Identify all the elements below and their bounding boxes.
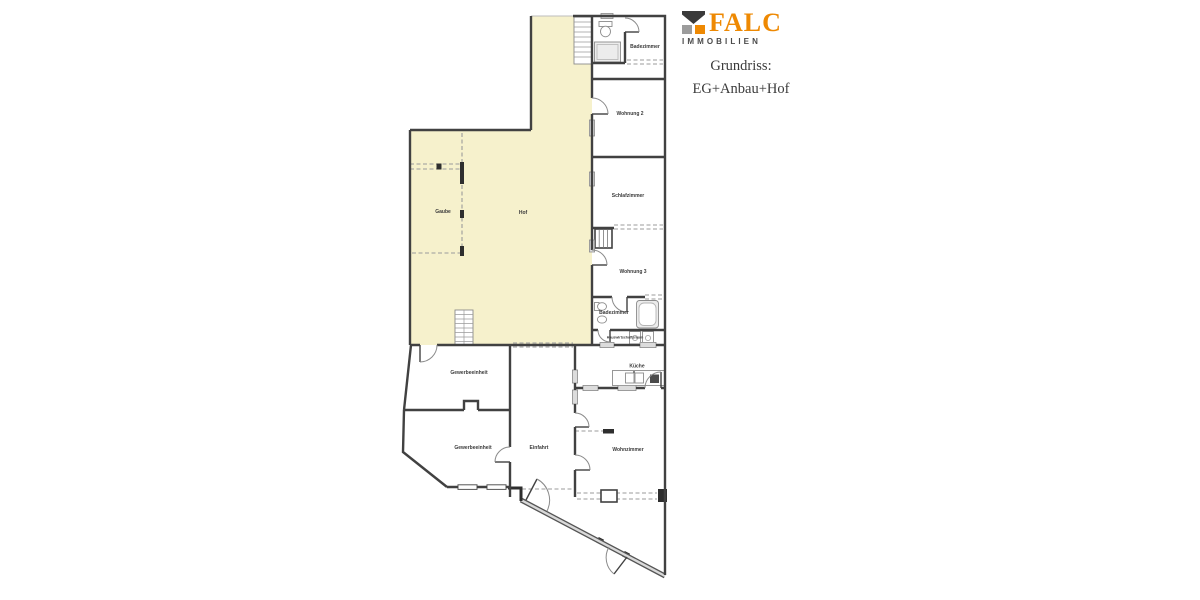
brand-name: FALC <box>709 11 782 34</box>
label-gaube: Gaube <box>435 209 451 215</box>
shower-tray <box>595 42 621 62</box>
kitchen-sink <box>626 373 635 383</box>
toilet-bowl <box>601 26 611 37</box>
sink <box>597 316 606 323</box>
plan-title: Grundriss: EG+Anbau+Hof <box>682 55 800 101</box>
label-wohnung-2: Wohnung 2 <box>616 111 643 117</box>
staircase-hof <box>455 310 473 345</box>
brand-row: FALC <box>682 11 800 34</box>
brand-block: FALC IMMOBILIEN Grundriss: EG+Anbau+Hof <box>682 11 800 101</box>
plan-title-line1: Grundriss: <box>682 55 800 78</box>
staircase-top <box>574 17 592 64</box>
label-wohnung-3: Wohnung 3 <box>619 269 646 275</box>
label-hauswirtschaftsraum: Hauswirtschaftsraum <box>607 336 644 340</box>
diagonal-wall <box>508 488 665 576</box>
hof-area <box>410 16 592 345</box>
plan-title-line2: EG+Anbau+Hof <box>682 78 800 101</box>
label-gewerbeeinheit-2: Gewerbeeinheit <box>454 445 492 451</box>
label-schlafzimmer: Schlafzimmer <box>612 193 645 199</box>
label-wohnzimmer: Wohnzimmer <box>612 447 643 453</box>
staircase-small <box>595 229 612 248</box>
label-badezimmer-top: Badezimmer <box>630 44 660 50</box>
brand-subname: IMMOBILIEN <box>682 37 800 46</box>
label-kueche: Küche <box>629 364 645 370</box>
label-badezimmer-2: Badezimmer <box>599 310 629 316</box>
label-gewerbeeinheit-1: Gewerbeeinheit <box>450 370 488 376</box>
label-hof: Hof <box>519 210 528 216</box>
floorplan-drawing: Hof Gaube Badezimmer Wohnung 2 Schlafzim… <box>0 0 1200 600</box>
falc-logo-icon <box>682 11 705 34</box>
label-einfahrt: Einfahrt <box>530 445 549 451</box>
page: Hof Gaube Badezimmer Wohnung 2 Schlafzim… <box>0 0 1200 600</box>
